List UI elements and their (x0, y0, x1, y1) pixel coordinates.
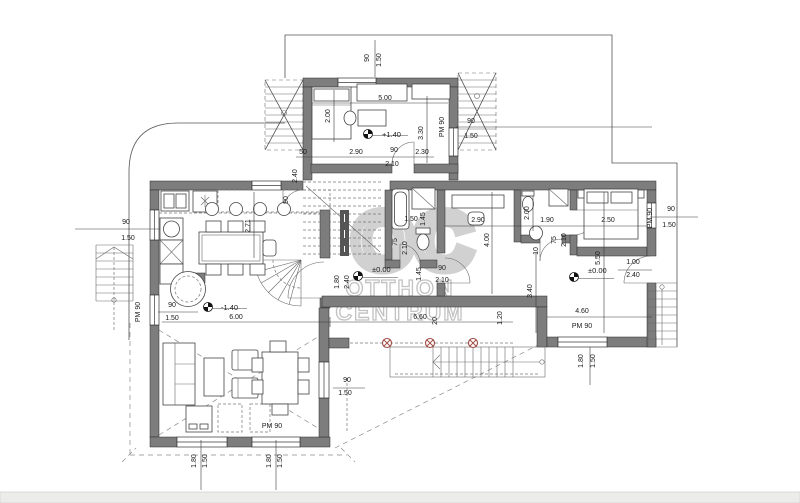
level-marker: ±0.00 (570, 266, 615, 282)
wc-sink (530, 226, 543, 240)
dimension-label: PM 90 (647, 208, 654, 228)
floor-plan-drawing: OC OTTHON CENTRUM (0, 0, 800, 503)
dimension-label: 1.50 (121, 235, 135, 242)
window (319, 362, 329, 398)
dimension-label: 4.00 (484, 233, 491, 247)
dimension-label: 2.90 (471, 217, 485, 224)
dimension-label: 1.80 (266, 454, 273, 468)
dining-table (199, 221, 276, 275)
dimension-label: 90 (667, 206, 675, 213)
terrace-columns (350, 339, 513, 348)
window (252, 181, 281, 190)
dimension-label: 3.40 (527, 284, 534, 298)
level-value: ±0.00 (588, 266, 607, 275)
shower (412, 188, 435, 209)
kitchen-counter (159, 190, 330, 216)
bedroom-bed (578, 189, 644, 239)
dimension-label: 5.50 (595, 251, 602, 265)
exterior-stair-top-left (265, 80, 303, 150)
terrace-steps (390, 347, 545, 377)
level-marker: +1.40 (364, 130, 409, 140)
dimension-label: 2.50 (601, 217, 615, 224)
dimension-label: 2.00 (524, 206, 531, 220)
dimension-label: 10 (533, 247, 540, 255)
level-value: ±0.00 (372, 265, 391, 274)
dimension-label: 90 (122, 219, 130, 226)
dimension-label: 2.40 (344, 275, 351, 289)
dimension-label: 6.60 (413, 314, 427, 321)
dimension-label: 90 (283, 196, 290, 204)
dimension-label: 2.40 (626, 272, 640, 279)
dimension-label: PM 90 (572, 323, 592, 330)
dimension-label: 2.71 (245, 219, 252, 233)
dimension-label: 1.50 (590, 354, 597, 368)
dimension-label: 1.20 (497, 311, 504, 325)
dimension-label: 90 (467, 118, 475, 125)
dimension-label: 3.30 (418, 126, 425, 140)
dimension-label: 90 (390, 147, 398, 154)
column-marker (383, 339, 392, 348)
dimension-label: 2.30 (415, 149, 429, 156)
window (449, 128, 458, 156)
dimension-label: 90 (364, 54, 371, 62)
dimension-label: 1.50 (464, 133, 478, 140)
dimension-label: 20 (432, 317, 439, 325)
dimension-label: 50 (299, 149, 307, 156)
rug-dashed (218, 404, 242, 432)
level-value: +1.40 (382, 130, 401, 139)
dimension-label: 1.90 (540, 217, 554, 224)
desk-and-chair (344, 110, 386, 126)
dimension-label: 2.10 (402, 241, 409, 255)
dimension-label: PM 90 (262, 423, 282, 430)
window (558, 337, 607, 347)
dimension-label: 1.45 (416, 267, 423, 281)
dimension-label: 90 (343, 377, 351, 384)
dimension-label: 1.80 (191, 454, 198, 468)
dimension-label: 1.45 (420, 212, 427, 226)
dimension-label: PM 90 (439, 117, 446, 137)
dimension-label: 90 (168, 302, 176, 309)
dimension-label: 6.00 (229, 314, 243, 321)
level-marker: -1.40 (204, 303, 248, 313)
window (177, 437, 227, 447)
page-edge-band (0, 492, 800, 503)
tv-cabinet (186, 406, 212, 432)
dimension-label: 2.10 (385, 161, 399, 168)
coffee-table (204, 358, 224, 396)
level-value: -1.40 (221, 303, 238, 312)
bathtub (392, 189, 409, 229)
dimension-label: 1.50 (338, 390, 352, 397)
dimension-label: 2.00 (325, 109, 332, 123)
wardrobe (412, 84, 450, 99)
dimension-label: 90 (438, 265, 446, 272)
sofa (163, 343, 195, 405)
dimension-label: 2.10 (561, 233, 568, 247)
column-marker (469, 339, 478, 348)
dimension-label: 1.80 (578, 354, 585, 368)
dimension-label: 2.40 (292, 169, 299, 183)
dimension-label: 1.50 (277, 454, 284, 468)
dimension-label: 1.00 (626, 259, 640, 266)
dimension-label: 2.10 (435, 277, 449, 284)
dimension-label: 2.90 (349, 149, 363, 156)
floor-plan-page: OC OTTHON CENTRUM (0, 0, 800, 503)
dimension-label: 1.50 (165, 315, 179, 322)
dimension-label: 75 (551, 236, 558, 244)
dimension-label: 5.00 (378, 95, 392, 102)
toilet (416, 228, 430, 250)
dimension-label: 1.50 (662, 222, 676, 229)
dimension-label: PM 90 (135, 302, 142, 322)
dimension-label: 1.50 (376, 53, 383, 67)
window (150, 210, 159, 240)
dimension-label: 1.50 (404, 216, 418, 223)
dimension-label: 75 (392, 238, 399, 246)
dimension-label: 1.80 (334, 275, 341, 289)
exterior-stair-left (96, 245, 133, 332)
dimension-label: 1.50 (202, 454, 209, 468)
column-marker (426, 339, 435, 348)
wc-shower (549, 189, 568, 206)
window (150, 295, 159, 325)
dimension-label: 4.60 (575, 308, 589, 315)
